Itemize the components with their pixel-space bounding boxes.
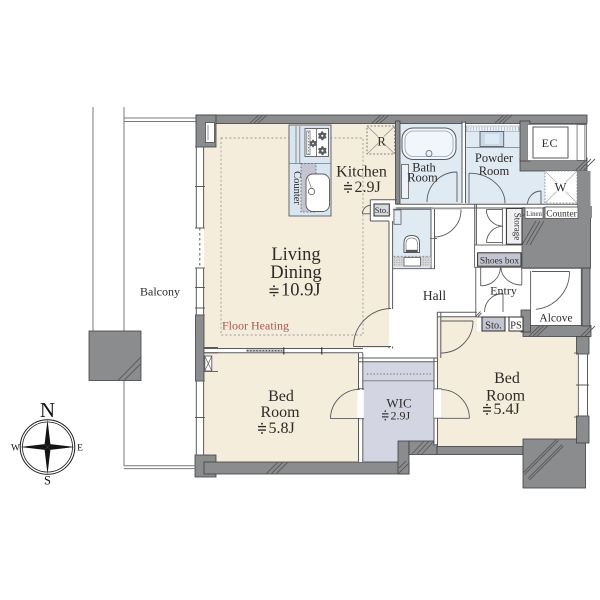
svg-text:Kitchen: Kitchen — [336, 164, 387, 181]
svg-text:Shoes box: Shoes box — [480, 256, 520, 266]
svg-text:PS: PS — [510, 321, 522, 332]
svg-text:N: N — [40, 398, 55, 422]
svg-text:W: W — [555, 181, 567, 195]
svg-text:Floor Heating: Floor Heating — [222, 319, 289, 333]
svg-text:Living: Living — [271, 245, 320, 265]
svg-text:E: E — [77, 444, 83, 454]
svg-text:10.9J: 10.9J — [281, 281, 321, 301]
svg-text:Sto.: Sto. — [485, 321, 502, 332]
svg-text:Alcove: Alcove — [539, 313, 572, 325]
svg-text:5.4J: 5.4J — [494, 401, 520, 418]
svg-text:2.9J: 2.9J — [391, 409, 411, 423]
svg-text:Bed: Bed — [268, 388, 294, 405]
svg-text:W: W — [11, 444, 20, 454]
svg-text:S: S — [44, 474, 51, 488]
svg-text:2.9J: 2.9J — [355, 179, 381, 196]
svg-text:5.8J: 5.8J — [269, 420, 295, 437]
svg-text:Hall: Hall — [423, 288, 446, 303]
svg-text:Storage: Storage — [512, 213, 522, 241]
svg-text:Balcony: Balcony — [140, 285, 180, 299]
svg-text:Linen: Linen — [526, 211, 542, 218]
svg-text:Bed: Bed — [494, 370, 520, 387]
svg-text:Room: Room — [407, 171, 438, 185]
svg-text:Sto.: Sto. — [375, 205, 388, 215]
svg-text:EC: EC — [542, 136, 558, 150]
svg-text:R: R — [377, 135, 386, 149]
svg-text:Counter: Counter — [546, 209, 577, 219]
svg-text:Room: Room — [479, 164, 510, 178]
svg-text:Entry: Entry — [490, 284, 517, 298]
svg-text:Counter: Counter — [291, 171, 302, 205]
svg-text:Room: Room — [260, 404, 300, 421]
